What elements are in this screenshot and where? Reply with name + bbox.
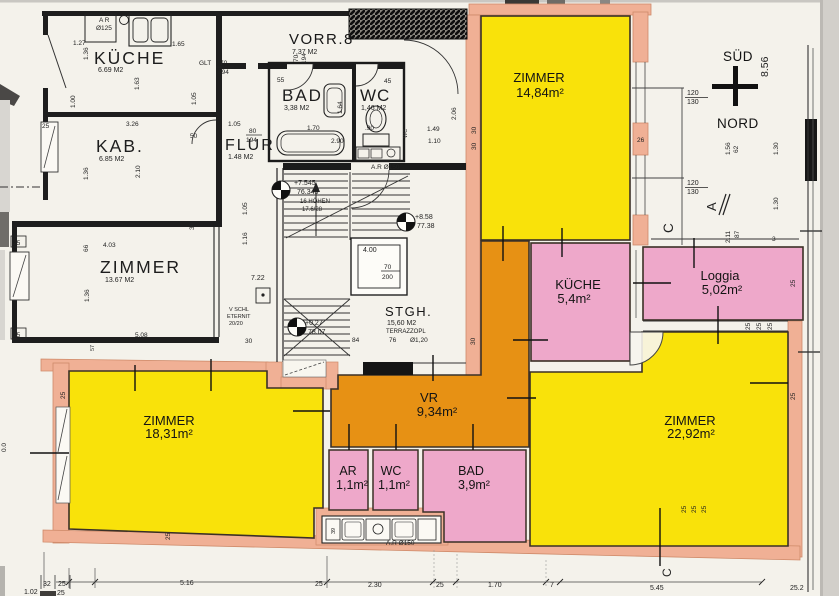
svg-text:WC: WC xyxy=(381,464,402,478)
svg-text:57: 57 xyxy=(90,345,96,351)
svg-text:1.64: 1.64 xyxy=(337,101,344,114)
svg-text:87: 87 xyxy=(734,230,741,238)
svg-text:13.67 M2: 13.67 M2 xyxy=(105,277,134,284)
svg-text:25: 25 xyxy=(756,322,763,330)
svg-text:39: 39 xyxy=(331,528,337,534)
svg-text:30: 30 xyxy=(471,126,478,134)
svg-text:KAB.: KAB. xyxy=(96,136,144,156)
svg-text:194: 194 xyxy=(246,137,257,144)
svg-text:50: 50 xyxy=(190,133,198,140)
svg-text:25: 25 xyxy=(790,392,797,400)
svg-text:1.36: 1.36 xyxy=(83,47,90,60)
svg-text:+8.58: +8.58 xyxy=(415,214,433,221)
svg-text:1.30: 1.30 xyxy=(773,142,780,155)
svg-text:120: 120 xyxy=(687,90,699,97)
svg-text:1.56: 1.56 xyxy=(725,142,732,155)
svg-text:A: A xyxy=(704,202,719,211)
svg-text:0.0: 0.0 xyxy=(1,443,8,452)
svg-text:25: 25 xyxy=(691,505,698,513)
svg-text:25.2: 25.2 xyxy=(790,585,804,592)
svg-text:4.00: 4.00 xyxy=(363,247,377,254)
svg-text:9,34m²: 9,34m² xyxy=(417,404,458,419)
svg-text:66: 66 xyxy=(83,244,90,252)
svg-text:5.08: 5.08 xyxy=(135,332,148,339)
svg-text:70: 70 xyxy=(293,54,300,62)
svg-text:2.30: 2.30 xyxy=(368,582,382,589)
svg-text:AR: AR xyxy=(339,464,356,478)
svg-text:130: 130 xyxy=(687,99,699,106)
svg-text:A R: A R xyxy=(99,17,110,24)
svg-text:A.R Ø150: A.R Ø150 xyxy=(386,540,415,547)
svg-text:2.06: 2.06 xyxy=(451,107,458,120)
svg-text:WC: WC xyxy=(360,86,390,105)
svg-text:1.30: 1.30 xyxy=(773,197,780,210)
svg-text:30: 30 xyxy=(245,338,253,345)
svg-text:130: 130 xyxy=(687,189,699,196)
svg-text:5.45: 5.45 xyxy=(650,585,664,592)
svg-text:194: 194 xyxy=(301,53,308,64)
svg-text:Ø1,20: Ø1,20 xyxy=(410,337,428,344)
svg-text:30: 30 xyxy=(471,142,478,150)
svg-text:C: C xyxy=(660,568,674,577)
svg-text:NORD: NORD xyxy=(717,116,759,131)
svg-text:76.345: 76.345 xyxy=(297,189,319,196)
svg-text:25: 25 xyxy=(60,391,67,399)
svg-text:BAD: BAD xyxy=(458,464,484,478)
svg-text:15,60 M2: 15,60 M2 xyxy=(387,320,416,327)
svg-text:8.56: 8.56 xyxy=(759,56,771,77)
svg-text:76: 76 xyxy=(389,337,397,344)
svg-text:25: 25 xyxy=(436,582,444,589)
svg-text:1.36: 1.36 xyxy=(83,167,90,180)
svg-text:ZIMMER: ZIMMER xyxy=(100,257,181,277)
svg-text:1.10: 1.10 xyxy=(428,138,441,145)
svg-text:1.02: 1.02 xyxy=(24,589,38,596)
svg-text:Ø125: Ø125 xyxy=(96,25,112,32)
svg-text:ZIMMER: ZIMMER xyxy=(513,70,564,85)
svg-text:1.65: 1.65 xyxy=(172,41,185,48)
svg-text:84: 84 xyxy=(352,337,360,344)
svg-text:WC: WC xyxy=(403,129,409,138)
svg-text:6.69 M2: 6.69 M2 xyxy=(98,67,123,74)
svg-text:25: 25 xyxy=(681,505,688,513)
svg-text:3: 3 xyxy=(772,236,776,243)
svg-text:1.48 M2: 1.48 M2 xyxy=(228,154,253,161)
svg-text:1.05: 1.05 xyxy=(191,92,198,105)
svg-text:2.90: 2.90 xyxy=(331,138,344,145)
svg-text:5,02m²: 5,02m² xyxy=(702,282,743,297)
svg-text:BAD: BAD xyxy=(282,86,323,105)
svg-text:120: 120 xyxy=(687,180,699,187)
svg-text:16 HÖHEN: 16 HÖHEN xyxy=(300,198,330,205)
svg-text:22,92m²: 22,92m² xyxy=(667,426,715,441)
svg-text:2.11: 2.11 xyxy=(725,230,732,243)
svg-text:194: 194 xyxy=(218,69,229,76)
svg-text:200: 200 xyxy=(382,274,393,281)
svg-text:14,84m²: 14,84m² xyxy=(516,85,564,100)
svg-text:1.27: 1.27 xyxy=(73,40,86,47)
svg-text:2.10: 2.10 xyxy=(135,165,142,178)
svg-text:KÜCHE: KÜCHE xyxy=(94,48,165,68)
svg-text:25: 25 xyxy=(790,279,797,287)
svg-text:ETERNIT: ETERNIT xyxy=(227,314,251,320)
svg-text:5,4m²: 5,4m² xyxy=(557,291,591,306)
svg-text:25: 25 xyxy=(165,532,172,540)
svg-text:32: 32 xyxy=(43,581,51,588)
svg-text:1.16: 1.16 xyxy=(242,232,249,245)
svg-text:3,9m²: 3,9m² xyxy=(458,478,490,492)
svg-text:5.16: 5.16 xyxy=(180,580,194,587)
svg-text:1.05: 1.05 xyxy=(242,202,249,215)
svg-text:A.R Ø150: A.R Ø150 xyxy=(371,164,400,171)
svg-text:18,31m²: 18,31m² xyxy=(145,426,193,441)
svg-text:7.22: 7.22 xyxy=(251,275,265,282)
svg-text:V SCHL: V SCHL xyxy=(229,307,249,313)
svg-text:1,46 M2: 1,46 M2 xyxy=(361,105,386,112)
svg-text:C: C xyxy=(661,223,676,233)
svg-text:Loggia: Loggia xyxy=(700,268,740,283)
svg-text:45: 45 xyxy=(384,78,392,85)
svg-text:3,38 M2: 3,38 M2 xyxy=(284,105,309,112)
svg-text:26: 26 xyxy=(637,137,645,144)
svg-text:25: 25 xyxy=(745,322,752,330)
svg-text:30: 30 xyxy=(189,222,196,230)
svg-text:70: 70 xyxy=(384,264,392,271)
svg-text:+0.27: +0.27 xyxy=(305,320,323,327)
svg-text:80: 80 xyxy=(249,128,257,135)
svg-text:TERRAZZOPL: TERRAZZOPL xyxy=(386,329,426,335)
svg-text:25: 25 xyxy=(13,332,21,339)
svg-text:GLT: GLT xyxy=(199,60,211,67)
svg-text:17.6/28: 17.6/28 xyxy=(302,207,323,213)
svg-text:25: 25 xyxy=(767,322,774,330)
svg-text:55: 55 xyxy=(277,77,285,84)
svg-text:1.49: 1.49 xyxy=(427,126,440,133)
svg-text:1.70: 1.70 xyxy=(488,582,502,589)
svg-text:STGH.: STGH. xyxy=(385,304,432,319)
svg-text:3.26: 3.26 xyxy=(126,121,139,128)
svg-text:1.36: 1.36 xyxy=(84,289,91,302)
svg-text:VORR.8: VORR.8 xyxy=(289,31,354,48)
svg-text:70: 70 xyxy=(220,60,228,67)
svg-text:1.63: 1.63 xyxy=(134,77,141,90)
svg-text:25: 25 xyxy=(57,590,65,596)
svg-text:VR: VR xyxy=(420,390,438,405)
svg-text:.90: .90 xyxy=(365,125,374,132)
svg-text:62: 62 xyxy=(733,145,740,153)
svg-text:1,1m²: 1,1m² xyxy=(378,478,410,492)
svg-text:25: 25 xyxy=(315,581,323,588)
svg-text:78.07: 78.07 xyxy=(308,329,326,336)
svg-text:1.05: 1.05 xyxy=(228,121,241,128)
svg-text:SÜD: SÜD xyxy=(723,49,753,64)
svg-text:25: 25 xyxy=(13,240,21,247)
svg-text:30: 30 xyxy=(470,337,477,345)
svg-text:20/20: 20/20 xyxy=(229,321,243,327)
svg-text:1.70: 1.70 xyxy=(307,125,320,132)
svg-text:25: 25 xyxy=(42,123,50,130)
svg-text:25: 25 xyxy=(701,505,708,513)
svg-text:25: 25 xyxy=(58,581,66,588)
svg-text:KÜCHE: KÜCHE xyxy=(555,277,601,292)
svg-text:7: 7 xyxy=(550,582,554,589)
svg-text:1.00: 1.00 xyxy=(70,95,77,108)
svg-text:4.03: 4.03 xyxy=(103,242,116,249)
svg-text:+7.545: +7.545 xyxy=(294,180,316,187)
svg-text:1,1m²: 1,1m² xyxy=(336,478,368,492)
svg-text:6.85 M2: 6.85 M2 xyxy=(99,156,124,163)
svg-text:77.38: 77.38 xyxy=(417,223,435,230)
